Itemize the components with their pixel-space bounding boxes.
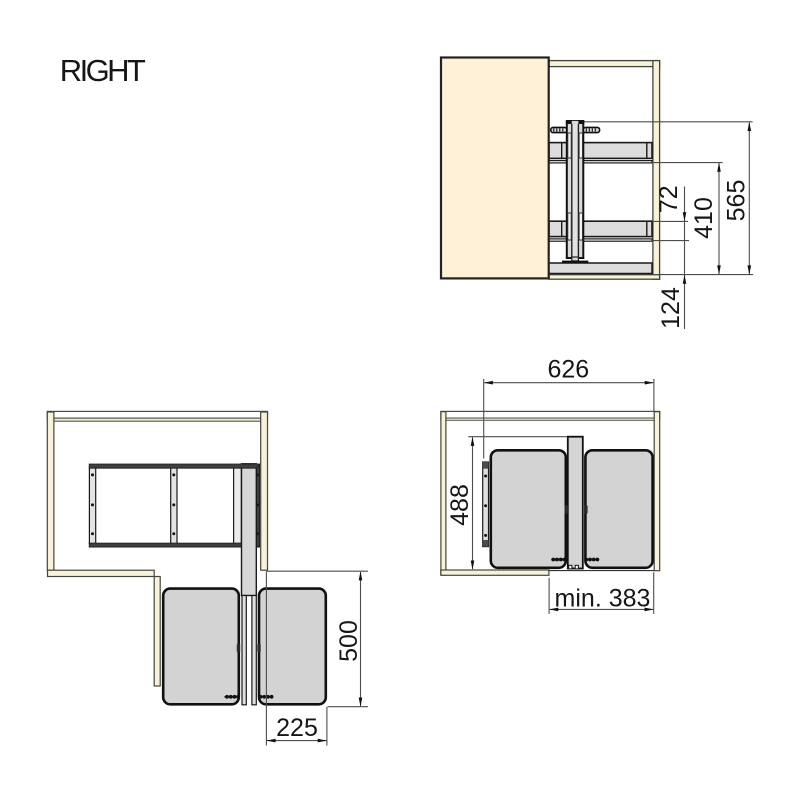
svg-text:500: 500	[335, 620, 363, 662]
svg-text:225: 225	[276, 714, 318, 742]
svg-text:min. 383: min. 383	[555, 584, 651, 612]
svg-text:RIGHT: RIGHT	[60, 53, 146, 88]
svg-text:72: 72	[655, 185, 683, 213]
svg-text:410: 410	[690, 197, 718, 239]
svg-text:565: 565	[723, 180, 751, 222]
svg-text:124: 124	[657, 287, 685, 329]
svg-text:626: 626	[547, 355, 589, 383]
svg-text:488: 488	[446, 484, 474, 526]
